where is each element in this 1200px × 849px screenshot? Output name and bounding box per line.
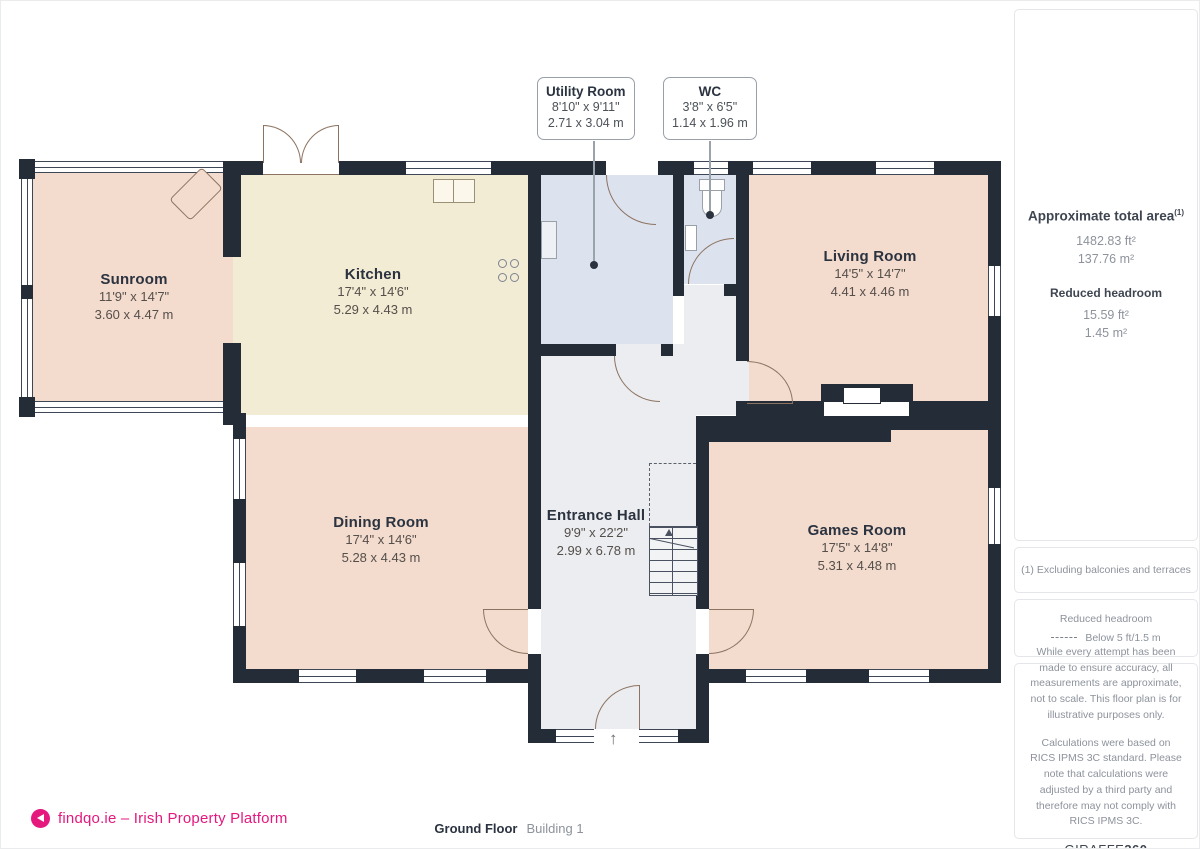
callout-wc: WC 3'8" x 6'5" 1.14 x 1.96 m	[663, 77, 757, 140]
window	[233, 439, 246, 499]
room-imperial: 17'5" x 14'8"	[808, 540, 907, 557]
window	[869, 669, 929, 683]
wall	[486, 669, 541, 683]
reduced-headroom-m: 1.45 m²	[1085, 324, 1127, 342]
room-metric: 5.29 x 4.43 m	[334, 302, 413, 319]
door-french-right	[301, 125, 339, 163]
wall	[528, 414, 541, 609]
room-imperial: 11'9" x 14'7"	[95, 289, 174, 306]
window	[988, 266, 1001, 316]
wall	[661, 344, 673, 356]
floor-label: Ground Floor	[434, 821, 517, 836]
legend-title: Reduced headroom	[1060, 613, 1152, 625]
legend-value: Below 5 ft/1.5 m	[1085, 632, 1160, 644]
utility-appliance	[541, 221, 557, 259]
total-area-m: 137.76 m²	[1078, 250, 1134, 268]
callout-leader	[709, 141, 711, 213]
wall	[988, 161, 1001, 266]
room-metric: 5.31 x 4.48 m	[808, 558, 907, 575]
french-door-opening	[263, 161, 339, 175]
callout-imperial: 3'8" x 6'5"	[672, 99, 748, 115]
sidebar-disclaimer: While every attempt has been made to ens…	[1014, 663, 1198, 839]
wall	[528, 344, 616, 356]
disclaimer-paragraph-1: While every attempt has been made to ens…	[1028, 645, 1184, 724]
callout-leader	[593, 141, 595, 263]
wall	[223, 161, 241, 257]
floor-plan: ↑ Utility Room 8'10" x 9'11" 2.71 x 3.04	[1, 1, 1011, 781]
room-metric: 5.28 x 4.43 m	[333, 550, 429, 567]
room-name: Sunroom	[95, 271, 174, 288]
total-area-ft: 1482.83 ft²	[1076, 232, 1136, 250]
reduced-headroom-label: Reduced headroom	[1050, 286, 1162, 300]
stairs	[649, 526, 698, 596]
wall	[696, 654, 709, 743]
room-label-kitchen: Kitchen 17'4" x 14'6" 5.29 x 4.43 m	[334, 266, 413, 318]
window	[424, 669, 486, 683]
callout-title: Utility Room	[546, 84, 626, 99]
window	[746, 669, 806, 683]
callout-metric: 2.71 x 3.04 m	[546, 115, 626, 131]
wall-post	[19, 397, 35, 417]
callout-imperial: 8'10" x 9'11"	[546, 99, 626, 115]
floor-title: Ground FloorBuilding 1	[434, 821, 583, 836]
wall	[736, 161, 749, 361]
footnote-marker: (1)	[1174, 208, 1184, 217]
door-french-left	[263, 125, 301, 163]
room-imperial: 17'4" x 14'6"	[334, 284, 413, 301]
fireplace-inset	[843, 387, 881, 404]
window	[406, 161, 491, 175]
room-imperial: 9'9" x 22'2"	[547, 525, 645, 542]
room-name: Games Room	[808, 522, 907, 539]
sidebar-footnote: (1) Excluding balconies and terraces	[1014, 547, 1198, 593]
giraffe360-logo: GIRAFFE360	[1064, 842, 1147, 849]
room-label-entrance-hall: Entrance Hall 9'9" x 22'2" 2.99 x 6.78 m	[547, 507, 645, 559]
window	[988, 488, 1001, 544]
findqo-logo-icon	[31, 809, 50, 828]
total-area-label: Approximate total area(1)	[1028, 208, 1184, 224]
room-label-living-room: Living Room 14'5" x 14'7" 4.41 x 4.46 m	[823, 248, 916, 300]
wc-toilet	[699, 179, 725, 191]
room-label-games-room: Games Room 17'5" x 14'8" 5.31 x 4.48 m	[808, 522, 907, 574]
reduced-headroom-ft: 15.59 ft²	[1083, 306, 1129, 324]
window	[21, 179, 33, 285]
chimney-breast	[701, 430, 891, 442]
wall	[233, 413, 246, 439]
room-metric: 4.41 x 4.46 m	[823, 284, 916, 301]
window	[753, 161, 811, 175]
window	[694, 161, 728, 175]
room-label-dining-room: Dining Room 17'4" x 14'6" 5.28 x 4.43 m	[333, 514, 429, 566]
wall	[696, 416, 1001, 430]
wall	[929, 669, 1001, 683]
room-label-sunroom: Sunroom 11'9" x 14'7" 3.60 x 4.47 m	[95, 271, 174, 323]
callout-dot	[706, 211, 714, 219]
reduced-headroom-boundary	[649, 463, 696, 464]
dashed-line-sample	[1051, 637, 1077, 638]
wall	[909, 401, 1001, 416]
wall	[696, 669, 746, 683]
wall	[673, 284, 684, 296]
wall	[528, 161, 541, 414]
sidebar-area-summary: Approximate total area(1) 1482.83 ft² 13…	[1014, 9, 1198, 541]
wall	[724, 284, 749, 296]
footnote-text: (1) Excluding balconies and terraces	[1021, 564, 1191, 576]
window	[299, 669, 356, 683]
room-name: Dining Room	[333, 514, 429, 531]
room-imperial: 14'5" x 14'7"	[823, 266, 916, 283]
floorplan-page: ↑ Utility Room 8'10" x 9'11" 2.71 x 3.04	[0, 0, 1200, 849]
wall	[356, 669, 424, 683]
wall	[339, 161, 406, 175]
wall	[233, 499, 246, 563]
wall	[491, 161, 606, 175]
callout-metric: 1.14 x 1.96 m	[672, 115, 748, 131]
room-metric: 2.99 x 6.78 m	[547, 543, 645, 560]
room-imperial: 17'4" x 14'6"	[333, 532, 429, 549]
window	[33, 161, 223, 173]
room-name: Living Room	[823, 248, 916, 265]
reduced-headroom-boundary	[649, 463, 650, 526]
utility-door-opening	[606, 161, 658, 175]
room-name: Entrance Hall	[547, 507, 645, 524]
findqo-logo-text: findqo.ie – Irish Property Platform	[58, 810, 288, 827]
legend-row: Below 5 ft/1.5 m	[1051, 632, 1160, 644]
callout-utility-room: Utility Room 8'10" x 9'11" 2.71 x 3.04 m	[537, 77, 635, 140]
wall	[806, 669, 869, 683]
window	[33, 401, 223, 413]
window	[21, 299, 33, 399]
window	[876, 161, 934, 175]
wall	[811, 161, 876, 175]
wall	[233, 669, 299, 683]
building-label: Building 1	[526, 821, 583, 836]
sidelight	[639, 729, 678, 743]
room-metric: 3.60 x 4.47 m	[95, 307, 174, 324]
stairs-arrow-icon	[665, 529, 673, 536]
wc-basin	[685, 225, 697, 251]
disclaimer-paragraph-2: Calculations were based on RICS IPMS 3C …	[1028, 736, 1184, 831]
wall-post	[21, 285, 33, 299]
wall	[673, 161, 684, 284]
window	[233, 563, 246, 626]
wall	[528, 729, 556, 743]
arrow-left-icon	[37, 814, 44, 822]
wall	[678, 729, 696, 743]
sidelight	[556, 729, 594, 743]
wall	[988, 544, 1001, 683]
room-name: Kitchen	[334, 266, 413, 283]
entrance-arrow-icon: ↑	[609, 729, 618, 749]
callout-dot	[590, 261, 598, 269]
wall-post	[19, 159, 35, 179]
kitchen-sink	[433, 179, 475, 203]
callout-title: WC	[672, 84, 748, 99]
